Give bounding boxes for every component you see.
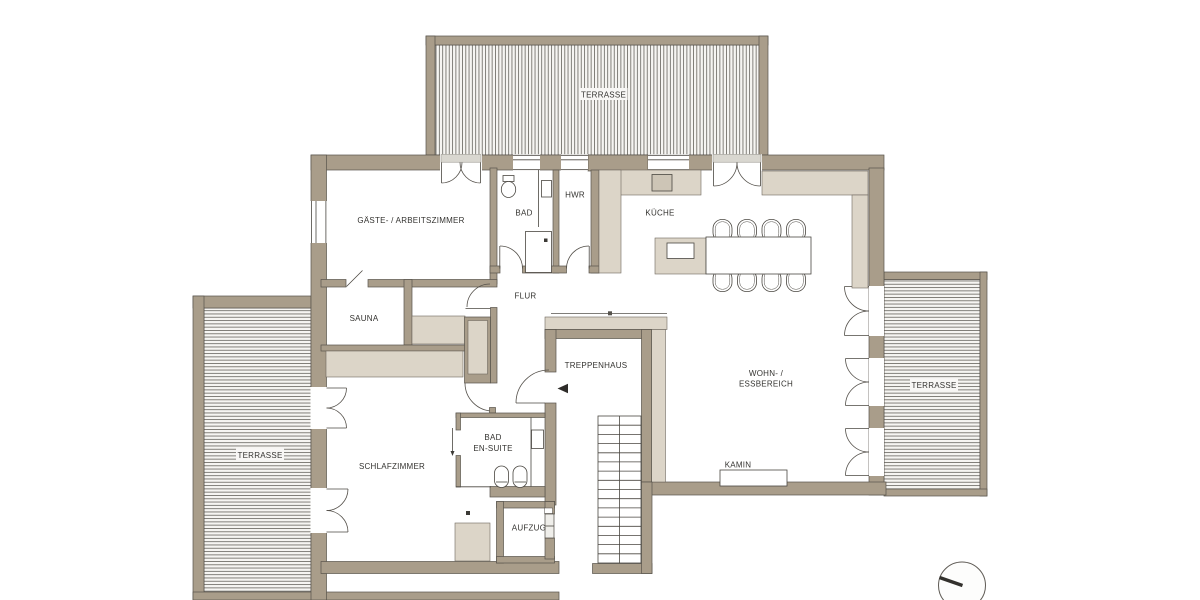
svg-text:HWR: HWR — [565, 190, 585, 199]
svg-text:TERRASSE: TERRASSE — [911, 381, 956, 390]
svg-text:BAD: BAD — [484, 433, 501, 442]
svg-text:GÄSTE- / ARBEITSZIMMER: GÄSTE- / ARBEITSZIMMER — [357, 216, 464, 225]
svg-text:KAMIN: KAMIN — [725, 460, 752, 469]
svg-text:SCHLAFZIMMER: SCHLAFZIMMER — [359, 462, 425, 471]
svg-text:ESSBEREICH: ESSBEREICH — [739, 380, 793, 389]
svg-text:FLUR: FLUR — [515, 291, 537, 300]
svg-text:TERRASSE: TERRASSE — [237, 451, 282, 460]
svg-text:EN-SUITE: EN-SUITE — [473, 444, 512, 453]
svg-text:BAD: BAD — [515, 208, 532, 217]
svg-text:AUFZUG: AUFZUG — [512, 524, 546, 533]
svg-text:SAUNA: SAUNA — [350, 314, 379, 323]
svg-text:KÜCHE: KÜCHE — [645, 208, 674, 217]
svg-text:WOHN- /: WOHN- / — [749, 369, 784, 378]
svg-text:TREPPENHAUS: TREPPENHAUS — [565, 361, 628, 370]
svg-text:TERRASSE: TERRASSE — [581, 91, 626, 100]
